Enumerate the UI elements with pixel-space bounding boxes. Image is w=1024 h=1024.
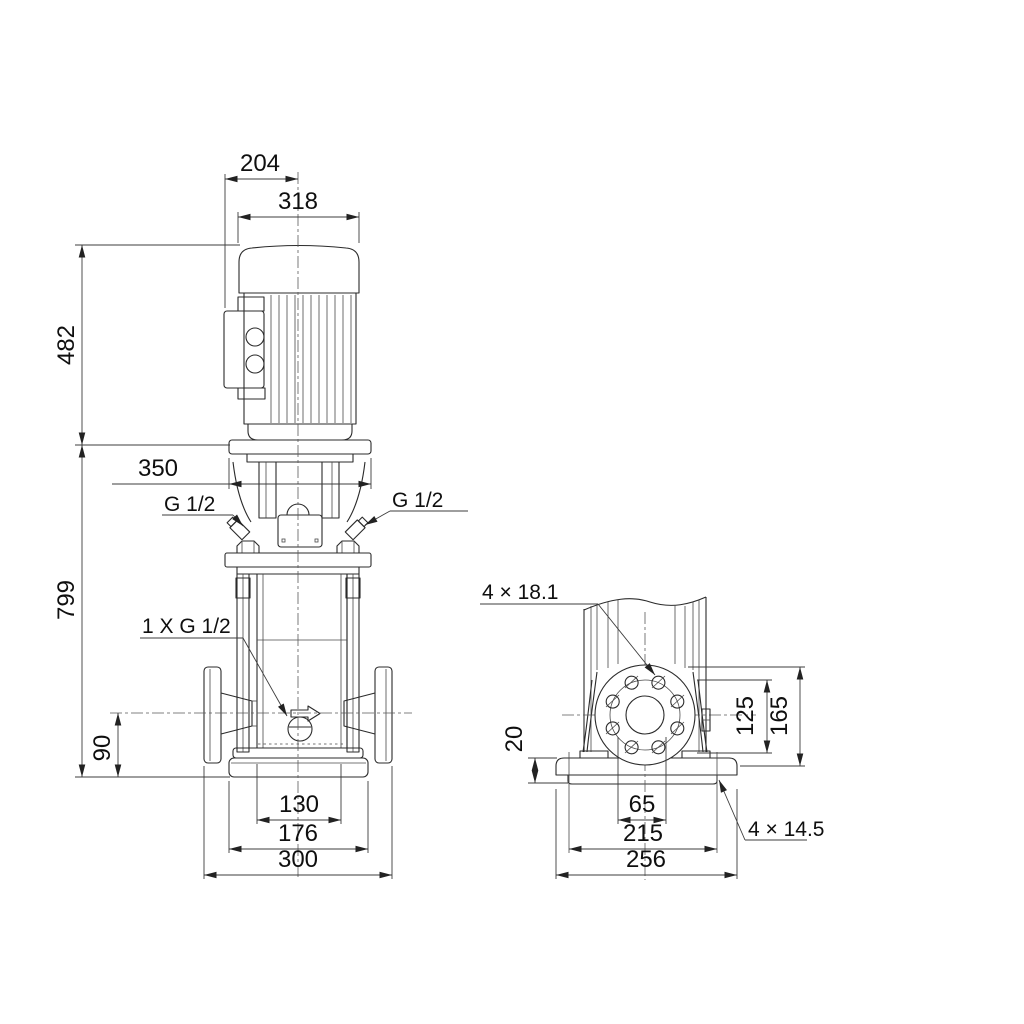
dim-label-300: 300 (278, 846, 318, 873)
dim-130: 130 (257, 764, 341, 824)
flange-holes-label: 4 × 18.1 (482, 581, 558, 604)
drain-label: 1 X G 1/2 (142, 615, 231, 638)
dim-label-318: 318 (278, 188, 318, 215)
head-bolt-right (337, 541, 359, 553)
drawing-canvas: 204 318 482 799 350 G 1/2 (0, 0, 1024, 1024)
dim-label-176: 176 (278, 820, 318, 847)
dim-label-165: 165 (766, 696, 793, 736)
front-view: 204 318 482 799 350 G 1/2 (53, 150, 468, 880)
drain-plug (288, 706, 320, 741)
side-view: 4 × 18.1 125 165 20 65 (480, 581, 824, 880)
dim-90: 90 (89, 713, 118, 777)
motor-flange (229, 424, 371, 462)
dim-label-256: 256 (626, 846, 666, 873)
dim-label-204: 204 (240, 150, 280, 177)
port-flange-right (344, 667, 392, 763)
dim-label-125: 125 (732, 696, 759, 736)
dim-204: 204 (225, 150, 298, 308)
motor-fan-cover (239, 246, 359, 294)
pump-dimensional-drawing: 204 318 482 799 350 G 1/2 (0, 0, 1024, 1024)
dim-20: 20 (501, 726, 568, 783)
dim-label-482: 482 (53, 325, 80, 365)
base-holes-label: 4 × 14.5 (748, 818, 824, 841)
head-bolt-left (237, 541, 259, 553)
dim-label-20: 20 (501, 726, 528, 753)
dim-482: 482 (53, 245, 240, 445)
dim-label-130: 130 (279, 791, 319, 818)
vent-right-label: G 1/2 (392, 489, 443, 512)
vent-left-label: G 1/2 (164, 493, 215, 516)
label-base-holes: 4 × 14.5 (719, 780, 824, 841)
vent-plug-left (226, 516, 250, 540)
label-flange-holes: 4 × 18.1 (480, 581, 655, 675)
label-vent-left: G 1/2 (162, 493, 243, 526)
dim-label-350: 350 (138, 455, 178, 482)
dim-label-799: 799 (53, 580, 80, 620)
motor-body (244, 293, 356, 424)
motor-fins (271, 295, 351, 423)
port-flange-face (595, 665, 710, 765)
motor-stool (226, 462, 369, 553)
cable-entry-hole (246, 355, 264, 373)
dim-label-90: 90 (89, 735, 116, 762)
coupling-guard (278, 504, 322, 547)
dim-125: 125 (697, 680, 772, 753)
dim-318: 318 (238, 188, 359, 243)
dim-label-215: 215 (623, 820, 663, 847)
label-drain: 1 X G 1/2 (140, 615, 287, 716)
label-vent-right: G 1/2 (365, 489, 468, 525)
dim-label-65: 65 (629, 791, 656, 818)
cable-entry-hole (246, 328, 264, 346)
